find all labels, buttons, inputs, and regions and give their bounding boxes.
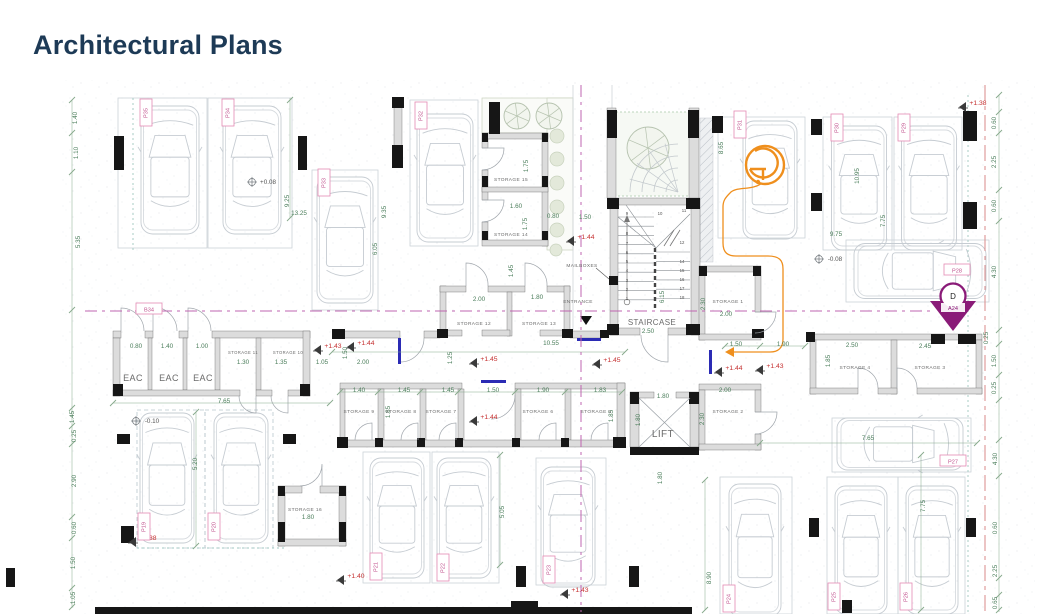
wall [482,330,510,336]
detail-marker-sheet: A24 [948,306,958,312]
dimension-label: 2.25 [992,564,999,577]
column [958,334,976,344]
door-leaf [709,350,712,374]
room-label: STORAGE 12 [457,321,491,327]
wall [482,187,548,192]
column [117,434,130,444]
wall [488,286,525,292]
parking-space-label: P23 [547,565,553,575]
dimension-label: 1.45 [508,264,515,277]
wall [810,388,858,394]
step-number: 10 [658,211,663,216]
column [931,334,945,344]
parking-space-label: P24 [727,594,733,604]
dimension-label: 1.83 [594,387,607,394]
dimension-label: 1.30 [237,359,250,366]
wall [610,205,618,335]
dimension-label: 1.50 [991,354,998,367]
wall [344,331,400,338]
dimension-label: 8.90 [706,571,713,584]
wall [256,338,261,390]
column [689,392,699,404]
room-label: STORAGE 3 [915,365,946,371]
dimension-label: 2.30 [699,412,706,425]
page: Architectural Plans 1.401.105.351.450.25… [0,0,1041,614]
dimension-label: 1.80 [302,514,315,521]
wall [691,205,700,335]
dimension-label: 9.35 [381,205,388,218]
level-marker: +1.44 [480,414,497,421]
column [512,438,520,447]
dimension-label: 0.60 [71,521,78,534]
column [629,566,639,587]
room-label: STORAGE 11 [228,350,258,355]
wall [976,340,982,394]
room-label: ENTRANCE [563,299,593,305]
dimension-label: 0.25 [983,331,990,344]
dimension-label: 1.85 [825,354,832,367]
wall [810,340,816,394]
column [332,329,345,339]
column [630,447,699,455]
column [298,136,307,170]
door-leaf [481,380,506,383]
wall [482,240,548,246]
wall [515,389,521,440]
column [607,198,619,209]
dimension-label: 5.05 [499,505,506,518]
dimension-label: 2.90 [71,474,78,487]
level-marker: +1.40 [347,573,364,580]
column [278,522,285,542]
parking-space-label: P26 [904,592,910,602]
dimension-label: 2.00 [720,311,733,318]
wall [570,331,602,338]
column [712,116,723,133]
room-label: STORAGE 8 [386,409,417,415]
column [542,176,548,187]
parking-space-label: P35 [144,108,150,118]
parking-space-label: P28 [952,269,962,275]
column [278,486,285,496]
column [482,176,488,187]
detail-marker-letter: D [950,292,956,301]
spot-level-label: -0.08 [828,256,843,263]
room-label: MAILBOXES [566,263,597,269]
wall [515,383,625,389]
dimension-label: 4.30 [991,265,998,278]
dimension-label: 13.25 [291,210,307,217]
bush-icon [550,176,564,190]
column [339,522,346,542]
wall [256,390,272,396]
column [511,601,538,614]
room-label: EAC [123,373,143,383]
dimension-label: 7.75 [920,499,927,512]
ramp-icon [746,146,784,184]
wall [212,331,310,338]
level-marker: +1.44 [725,365,742,372]
column [811,119,822,135]
dimension-label: 1.10 [73,146,80,159]
dimension-label: 1.50 [730,341,743,348]
dimension-label: 9.75 [830,231,843,238]
wall [810,334,982,340]
wall [755,390,761,412]
dimension-label: 10.95 [854,168,861,184]
dimension-label: 0.25 [71,429,78,442]
room-label: STORAGE 16 [288,507,322,513]
column [607,110,617,138]
dimension-label: 1.35 [275,359,288,366]
dimension-label: 1.90 [537,387,550,394]
dimension-label: 1.45 [442,387,455,394]
bush-icon [550,200,564,214]
wall [507,292,512,336]
parking-space-label: P34 [226,108,232,118]
room-label: STORAGE 5 [581,409,612,415]
room-label: STORAGE 9 [344,409,375,415]
dimension-label: 7.75 [880,214,887,227]
bush-icon [550,223,564,237]
column [437,329,448,338]
dimension-label: 0.25 [991,381,998,394]
wall [917,388,982,394]
column [752,329,764,338]
column [516,566,526,587]
dimension-label: 1.40 [72,111,79,124]
bush-icon [550,244,562,256]
room-label: STORAGE 14 [494,232,528,238]
step-number: 14 [680,259,685,264]
parking-space-label: P22 [441,563,447,573]
door-leaf [398,338,401,364]
dimension-label: 0.80 [547,213,560,220]
parking-space-label: P29 [902,123,908,133]
level-marker: +1.45 [603,357,620,364]
column [482,231,488,240]
room-label: STORAGE 4 [840,365,871,371]
column [686,324,700,335]
level-marker: +1.44 [577,234,594,241]
column [753,266,761,276]
dimension-label: 1.00 [196,343,209,350]
dimension-label: 1.80 [531,294,544,301]
column [630,392,639,404]
wall [699,334,761,340]
column [963,111,977,141]
column [561,438,569,447]
step-number: 17 [680,286,685,291]
wall [183,338,187,390]
level-marker: +1.44 [357,340,374,347]
dimension-label: 5.35 [75,235,82,248]
dimension-label: 1.40 [353,387,366,394]
parking-space-label: B34 [144,308,154,314]
column [114,136,124,170]
wall [878,388,897,394]
parking-space-label: P32 [419,111,425,121]
dimension-label: 1.05 [70,591,77,604]
dimension-label: 2.25 [991,155,998,168]
wall [148,338,152,390]
parking-space-label: P21 [374,562,380,572]
column [283,434,296,444]
dimension-label: 7.65 [218,398,231,405]
dimension-label: 1.75 [522,217,529,230]
column [806,332,815,342]
room-label: STORAGE 7 [426,409,457,415]
dimension-label: 2.00 [719,387,732,394]
dimension-label: 0.65 [992,596,999,609]
column [842,600,852,613]
dimension-label: 10.55 [543,340,559,347]
room-label: LIFT [652,429,674,440]
dimension-label: 1.60 [510,203,523,210]
ramp-hatch [700,118,713,262]
dimension-label: 1.45 [69,410,76,423]
parking-space-label: P20 [212,522,218,532]
column [699,266,707,276]
level-marker: +1.43 [324,343,341,350]
spot-level-label: +0.08 [260,179,276,186]
column [609,276,618,285]
dimension-label: 1.75 [523,159,530,172]
column [337,437,348,448]
wall [699,266,761,272]
wall [565,389,571,440]
dimension-label: 2.50 [846,342,859,349]
tree-icon [504,103,530,129]
wall [113,390,240,396]
wall [179,331,188,338]
room-label: EAC [193,373,213,383]
column [688,110,699,138]
column [482,133,488,142]
dimension-label: 8.65 [718,141,725,154]
wall [378,389,384,440]
step-number: 15 [680,268,685,273]
column [542,133,548,142]
room-label: EAC [159,373,179,383]
dimension-label: 1.80 [635,413,642,426]
dimension-label: 2.00 [357,359,370,366]
dimension-label: 7.65 [862,435,875,442]
column [809,518,819,537]
column [489,102,500,134]
room-label: STAIRCASE [628,318,676,327]
room-label: STORAGE 13 [522,321,556,327]
dimension-label: 1.90 [777,341,790,348]
room-label: STORAGE 10 [273,350,303,355]
column [600,330,609,338]
parking-space-label: P27 [948,460,958,466]
wall [755,272,761,312]
room-label: STORAGE 6 [523,409,554,415]
column [562,329,573,338]
step-number: 12 [680,240,685,245]
dimension-label: 1.45 [398,387,411,394]
dimension-label: 2.50 [642,328,655,335]
level-marker: +1.43 [766,363,783,370]
dimension-label: 0.80 [130,343,143,350]
column [95,607,692,614]
column [613,437,626,448]
column [686,198,700,209]
bush-icon [550,152,564,166]
parking-space-label: P19 [142,522,148,532]
column [966,518,976,537]
dimension-label: 0.60 [991,116,998,129]
dimension-label: 6.05 [372,242,379,255]
room-label: STORAGE 1 [713,299,744,305]
spot-level-label: -0.10 [145,418,160,425]
column [375,438,383,447]
dimension-label: 6.15 [659,290,666,303]
dimension-label: 1.50 [487,387,500,394]
bush-icon [550,129,564,143]
dimension-label: 1.80 [657,393,670,400]
column [811,193,822,211]
column [300,384,310,396]
step-number: 18 [680,295,685,300]
dimension-label: 2.45 [919,343,932,350]
dimension-label: 4.30 [992,452,999,465]
wall [145,331,153,338]
dimension-label: 1.40 [161,343,174,350]
parking-space-label: P30 [835,123,841,133]
level-marker: +1.38 [969,100,986,107]
wall [113,331,121,338]
wall [278,539,346,546]
column [963,202,977,229]
level-marker: +1.43 [571,587,588,594]
dimension-label: 2.30 [700,297,707,310]
column [392,145,403,168]
dimension-label: 1.25 [447,351,454,364]
wall [440,286,466,292]
parking-space-label: P31 [738,120,744,130]
dimension-label: 0.60 [992,521,999,534]
tree-icon [627,127,669,169]
dimension-label: 5.20 [192,457,199,470]
wall [699,444,761,450]
step-number: 16 [680,277,685,282]
parking-space-label: P25 [832,592,838,602]
step-number: 11 [682,208,687,213]
room-label: STORAGE 15 [494,177,528,183]
column [113,384,123,396]
tree-icon [536,103,562,129]
dimension-label: 9.25 [284,194,291,207]
dimension-label: 1.05 [316,359,329,366]
room-label: STORAGE 2 [713,409,744,415]
column [6,568,15,587]
column [542,231,548,240]
dimension-label: 2.00 [473,296,486,303]
dimension-label: 1.50 [579,214,592,221]
wall [215,338,220,390]
column [392,97,404,108]
wall [394,107,402,147]
floor-plan-drawing: 1.401.105.351.450.252.900.601.501.059.25… [0,0,1041,614]
parking-space-label: P33 [322,178,328,188]
wall [891,340,897,394]
dimension-label: 1.50 [70,556,77,569]
wall [458,389,464,440]
level-marker: +1.45 [480,356,497,363]
wall [690,398,699,447]
column [339,486,346,496]
dimension-label: 1.80 [657,471,664,484]
dimension-label: 0.60 [991,199,998,212]
